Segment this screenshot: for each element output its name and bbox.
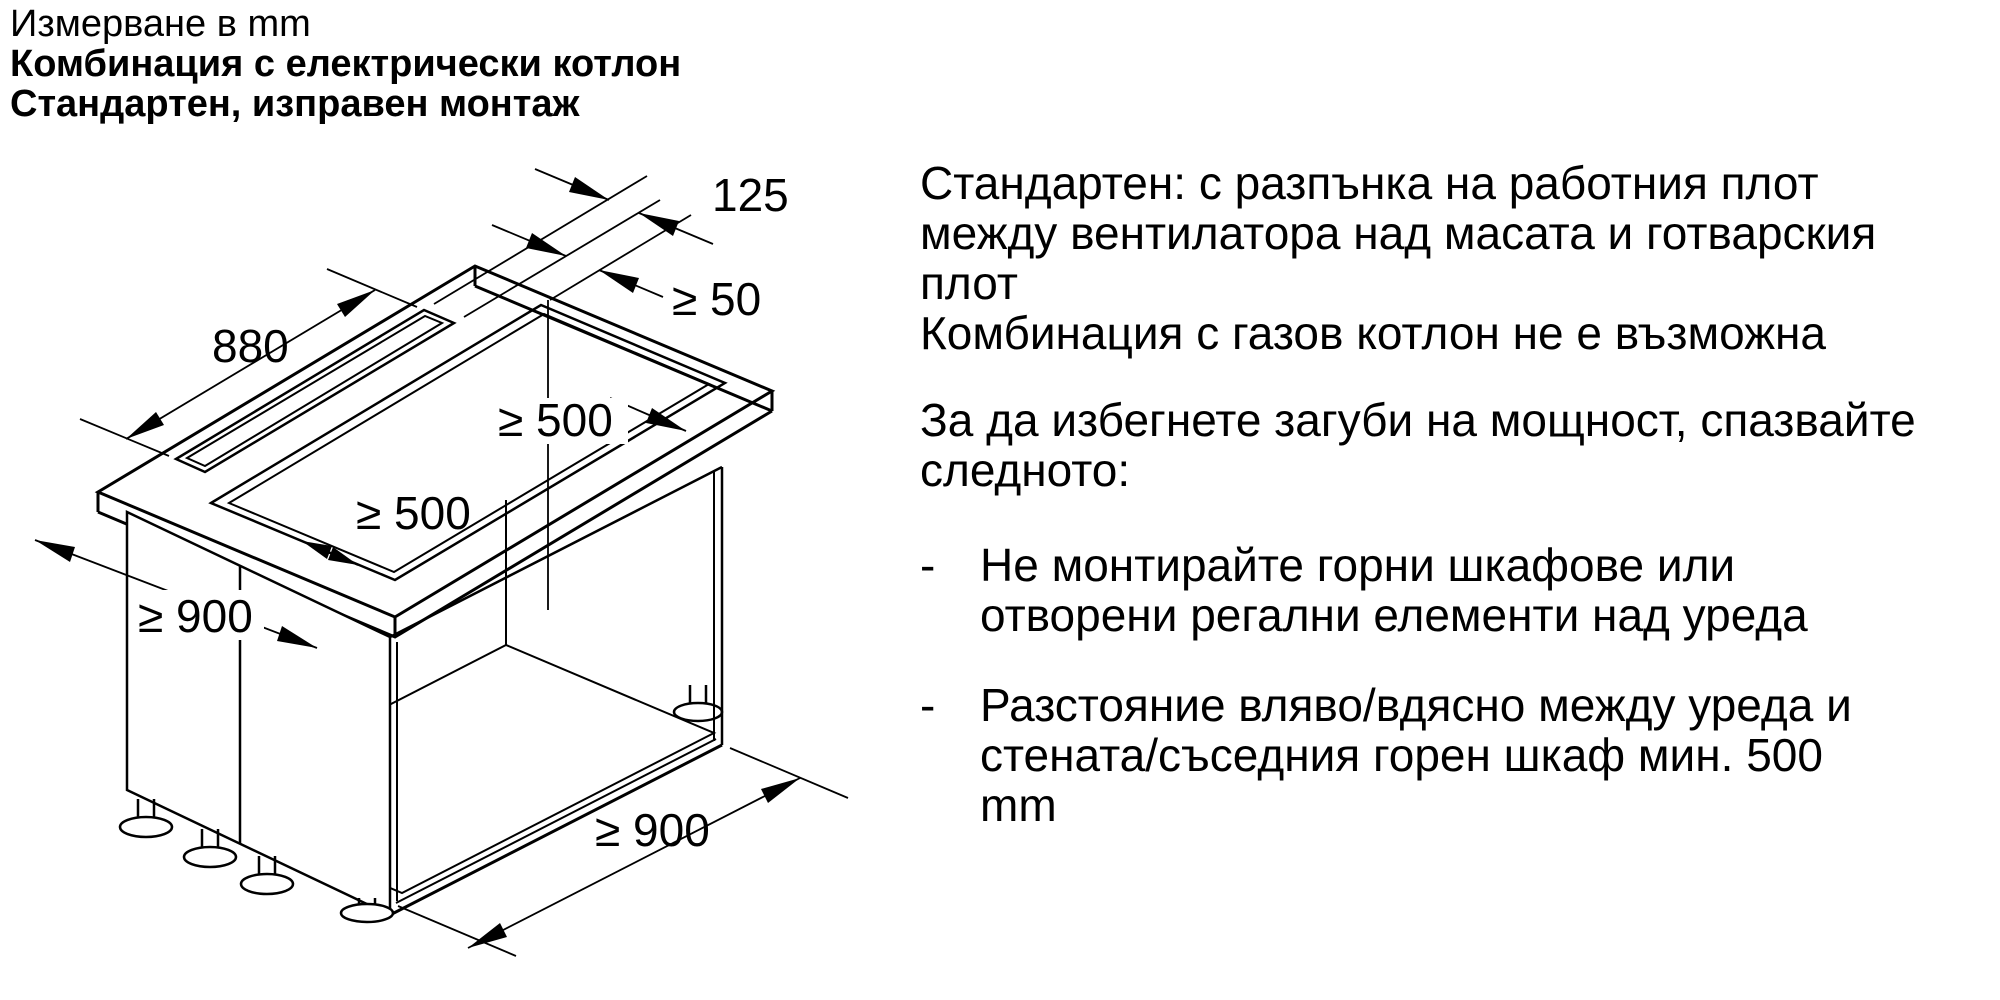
installation-diagram: 125 ≥ 50 880 ≥ 500 ≥ 500 ≥ 900 ≥ 900 [0,0,900,1000]
bullet-dash: - [920,540,980,590]
dim-label-slot-length: 880 [212,320,289,372]
dim-label-cutout-right: ≥ 500 [498,394,613,446]
bullet-side-clearance: - Разстояние вляво/вдясно между уреда и … [920,680,1950,830]
paragraph-standard: Стандартен: с разпънка на работния плот … [920,158,1950,358]
text-line: между вентилатора над масата и готварски… [920,208,1950,258]
text-line: mm [980,780,1852,830]
text-line: стената/съседния горен шкаф мин. 500 [980,730,1852,780]
bullet-text: Разстояние вляво/вдясно между уреда и ст… [980,680,1852,830]
text-line: отворени регални елементи над уреда [980,590,1808,640]
text-line: За да избегнете загуби на мощност, спазв… [920,395,1950,445]
text-line: Разстояние вляво/вдясно между уреда и [980,680,1852,730]
text-line: Стандартен: с разпънка на работния плот [920,158,1950,208]
dim-label-cutout-front: ≥ 500 [356,487,471,539]
instructions-column: Стандартен: с разпънка на работния плот … [920,158,1950,830]
dim-label-width: ≥ 900 [595,804,710,856]
manual-page: Измерване в mm Комбинация с електрически… [0,0,2000,1000]
dim-label-height: ≥ 900 [138,590,253,642]
bullet-dash: - [920,680,980,730]
text-line: Не монтирайте горни шкафове или [980,540,1808,590]
text-line: следното: [920,445,1950,495]
dim-label-slot-width: 125 [712,169,789,221]
bullet-text: Не монтирайте горни шкафове или отворени… [980,540,1808,640]
text-line: Комбинация с газов котлон не е възможна [920,308,1950,358]
dim-label-slot-gap: ≥ 50 [672,273,761,325]
text-line: плот [920,258,1950,308]
bullet-no-upper-cabinets: - Не монтирайте горни шкафове или отворе… [920,540,1950,640]
paragraph-power-loss: За да избегнете загуби на мощност, спазв… [920,395,1950,495]
